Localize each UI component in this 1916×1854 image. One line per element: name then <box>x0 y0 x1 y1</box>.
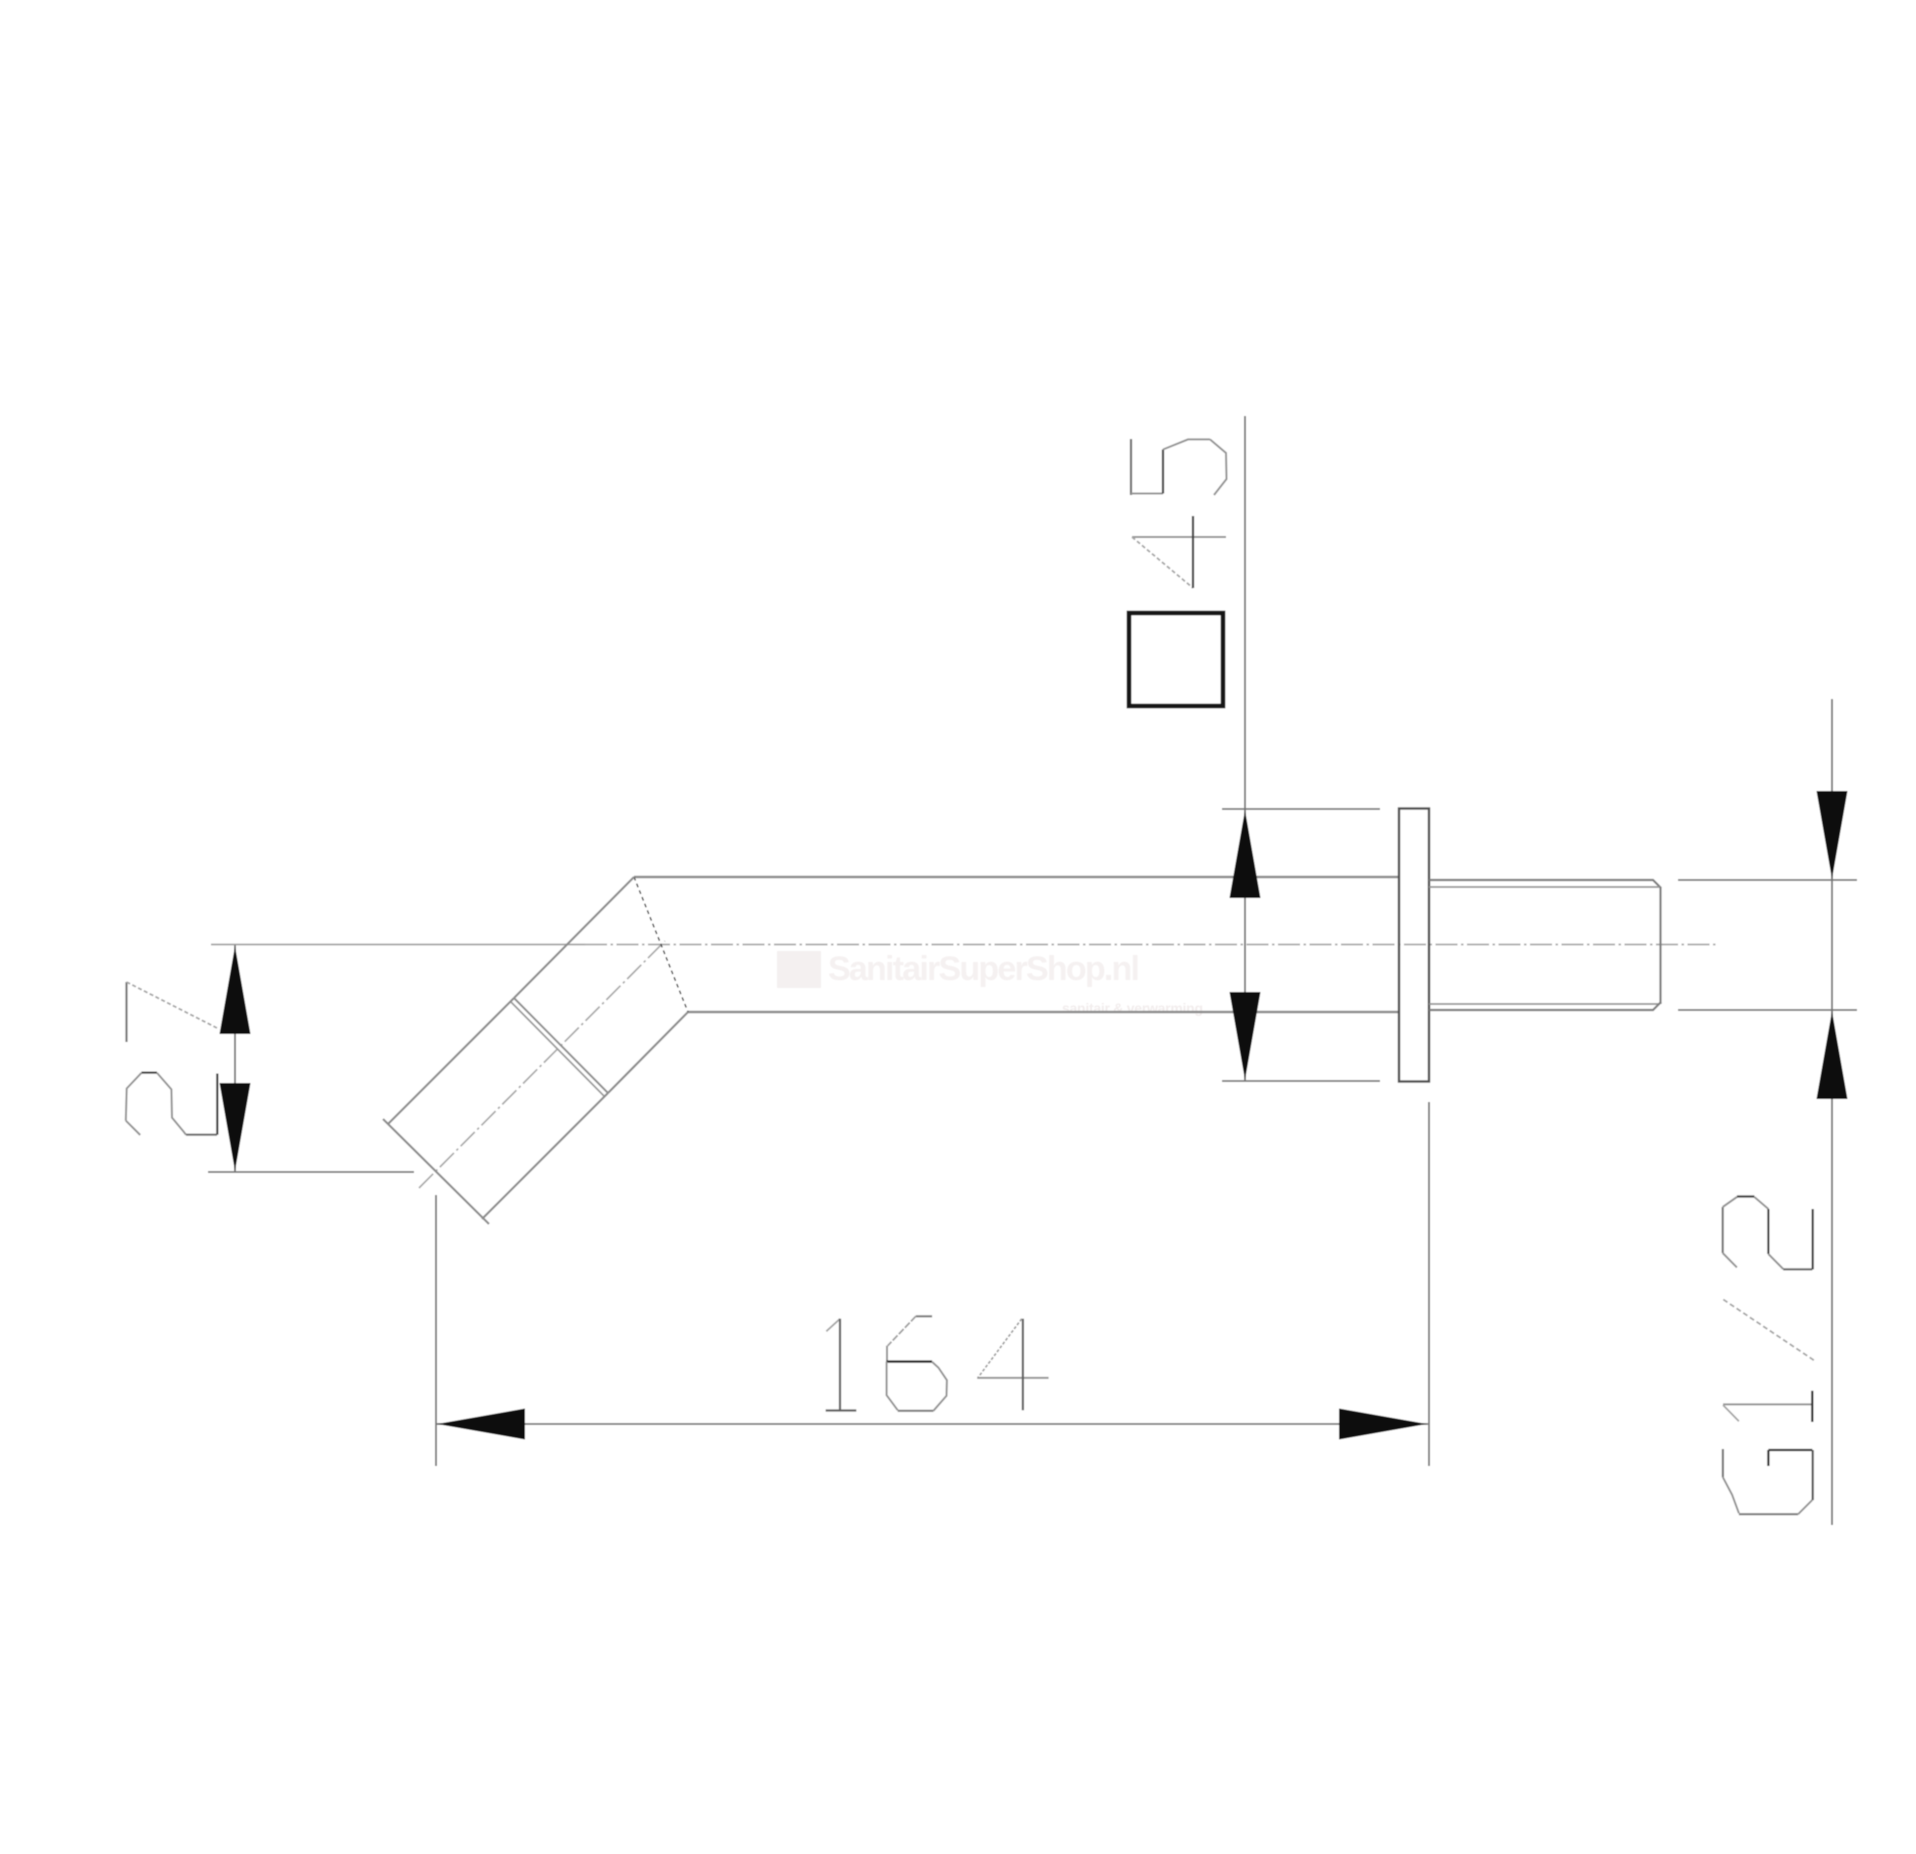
svg-text:sanitair & verwarming: sanitair & verwarming <box>1062 1000 1203 1016</box>
svg-text:SanitairSuperShop.nl: SanitairSuperShop.nl <box>828 950 1140 988</box>
